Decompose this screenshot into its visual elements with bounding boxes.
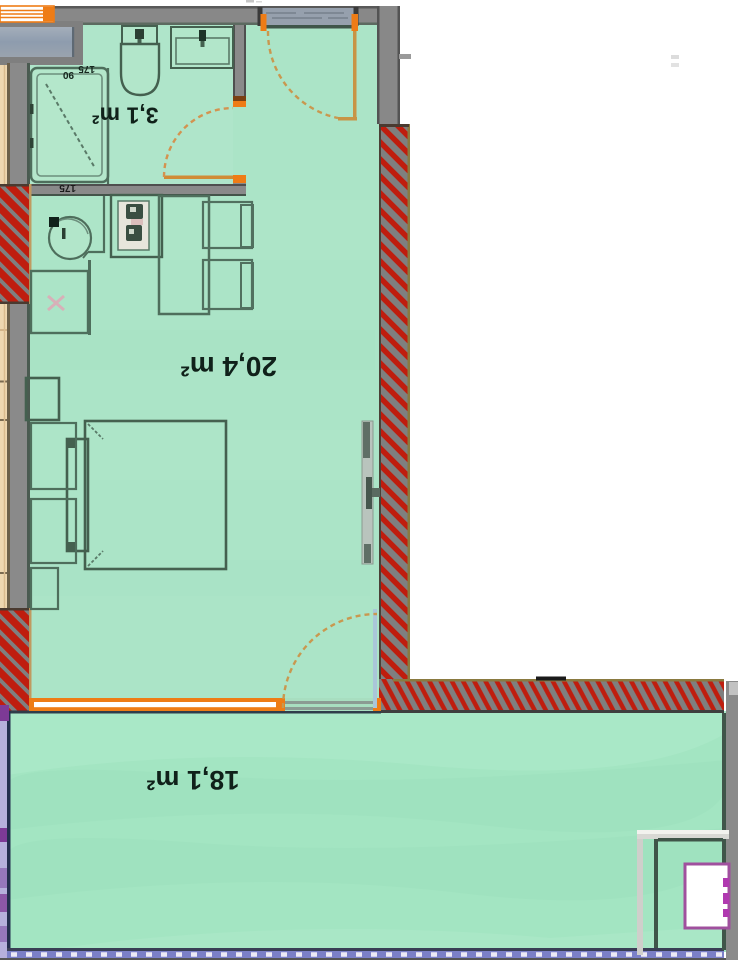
svg-text:175: 175 bbox=[78, 63, 95, 74]
svg-text:3,1 m²: 3,1 m² bbox=[92, 103, 159, 129]
svg-text:18,1 m²: 18,1 m² bbox=[146, 765, 239, 795]
svg-text:90: 90 bbox=[62, 69, 74, 80]
svg-text:175: 175 bbox=[59, 182, 76, 193]
svg-text:20,4 m²: 20,4 m² bbox=[181, 351, 278, 382]
